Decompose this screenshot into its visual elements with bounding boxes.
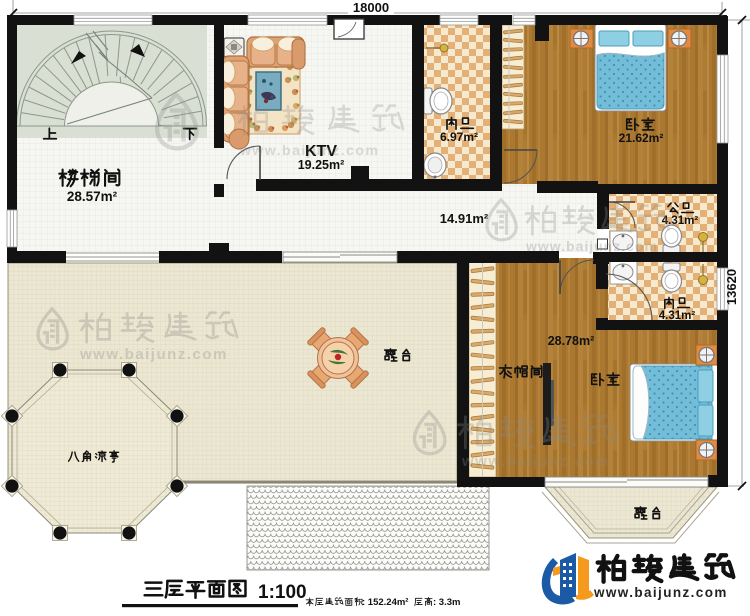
svg-text:www.baijunz.com: www.baijunz.com xyxy=(239,142,379,158)
svg-text:6.97m²: 6.97m² xyxy=(440,130,478,144)
svg-text:www.baijunz.com: www.baijunz.com xyxy=(79,346,228,363)
svg-text:: 152.24m²: : 152.24m² xyxy=(362,597,408,608)
svg-text:www.baijunz.com: www.baijunz.com xyxy=(461,453,610,470)
svg-text:: 3.3m: : 3.3m xyxy=(433,597,460,608)
svg-text:28.78m²: 28.78m² xyxy=(548,334,595,348)
svg-text:18000: 18000 xyxy=(353,0,389,15)
svg-text:1:100: 1:100 xyxy=(258,582,307,603)
svg-text:14.91m²: 14.91m² xyxy=(440,211,489,226)
svg-text:www.baijunz.com: www.baijunz.com xyxy=(525,238,658,254)
svg-text:21.62m²: 21.62m² xyxy=(619,131,664,145)
svg-text:28.57m²: 28.57m² xyxy=(67,189,118,204)
svg-text:13620: 13620 xyxy=(724,269,739,305)
svg-text:4.31m²: 4.31m² xyxy=(659,310,696,322)
svg-text:19.25m²: 19.25m² xyxy=(298,158,345,172)
svg-text:www.baijunz.com: www.baijunz.com xyxy=(593,585,728,600)
